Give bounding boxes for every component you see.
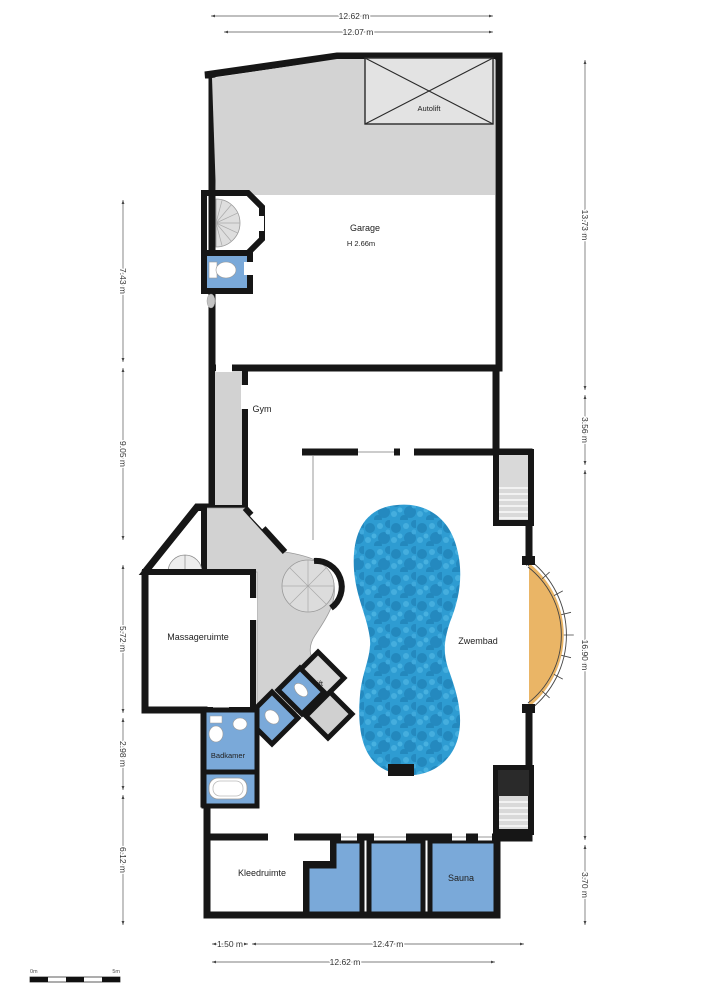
shower-room-2 xyxy=(369,841,423,914)
dim-bottom-1: 12.47 m xyxy=(373,939,404,949)
dim-right-3: 3.70 m xyxy=(580,872,590,898)
stairs-upper-right xyxy=(496,452,531,523)
dim-left-4: 6.12 m xyxy=(118,847,128,873)
dim-left-1: 9.05 m xyxy=(118,441,128,467)
dim-left-0: 7.43 m xyxy=(118,268,128,294)
garage-height-label: H 2.66m xyxy=(347,239,375,248)
dim-top-0: 12.62 m xyxy=(339,11,370,21)
dim-top-1: 12.07 m xyxy=(343,27,374,37)
scale-start-label: 0m xyxy=(30,969,38,975)
corridor-door-gap xyxy=(241,385,249,409)
sink-icon xyxy=(233,718,247,730)
room-massageruimte xyxy=(145,572,257,714)
dim-right-1: 3.56 m xyxy=(580,417,590,443)
floorplan-page: Lift xyxy=(0,0,707,1000)
stair-room-door xyxy=(256,216,264,231)
dim-bottom-0: 1.50 m xyxy=(217,939,243,949)
autolift-label: Autolift xyxy=(418,104,442,113)
shower-room-1 xyxy=(307,841,362,914)
autolift-platform xyxy=(365,58,493,124)
entry-porch xyxy=(145,508,204,572)
scale-bar: 0m 5m xyxy=(30,969,120,982)
dim-bottom-2: 12.62 m xyxy=(330,957,361,967)
scale-end-label: 5m xyxy=(112,969,120,975)
pool-wall-stub xyxy=(388,764,414,776)
massage-door-gap xyxy=(249,598,257,620)
gym-label: Gym xyxy=(253,404,272,414)
toilet-bowl-icon xyxy=(216,262,236,278)
garage-label: Garage xyxy=(350,223,380,233)
floor-plan-canvas: Lift xyxy=(0,0,707,1000)
swimming-pool xyxy=(354,505,461,776)
dim-right-0: 13.73 m xyxy=(580,210,590,241)
corridor xyxy=(212,364,249,508)
wall-fixture-icon xyxy=(207,294,215,308)
hall-spiral-stair xyxy=(282,560,342,612)
massageruimte-label: Massageruimte xyxy=(167,632,229,642)
garage-door-gap xyxy=(216,364,232,372)
room-badkamer xyxy=(204,710,257,772)
stairs-lower-right xyxy=(496,768,531,832)
dim-left-2: 5.72 m xyxy=(118,626,128,652)
bay-window xyxy=(522,556,574,713)
stair-landing-dark xyxy=(498,770,529,796)
kleedruimte-label: Kleedruimte xyxy=(238,868,286,878)
wc-door xyxy=(244,262,253,275)
sauna-label: Sauna xyxy=(448,873,474,883)
dim-left-3: 2.98 m xyxy=(118,741,128,767)
divider-door-gap xyxy=(400,448,414,456)
bathtub-room xyxy=(204,772,257,806)
toilet-bowl-icon xyxy=(209,726,223,742)
toilet-tank-icon xyxy=(210,716,222,723)
zwembad-label: Zwembad xyxy=(458,636,498,646)
dim-right-2: 16.90 m xyxy=(580,640,590,671)
garage-wc xyxy=(204,253,253,308)
badkamer-label: Badkamer xyxy=(211,751,246,760)
